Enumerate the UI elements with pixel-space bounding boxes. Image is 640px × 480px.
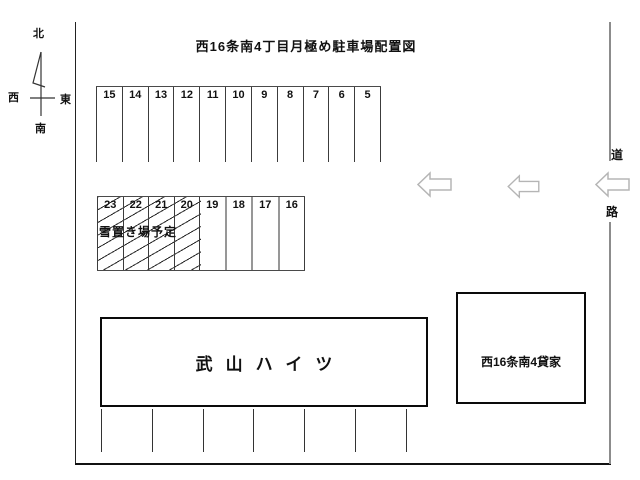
snow-storage-label: 雪置き場予定	[99, 223, 177, 240]
parking-stall-20: 20	[174, 197, 200, 270]
parking-stall-10: 10	[225, 87, 251, 162]
boundary-bottom-line	[75, 463, 611, 465]
diagram-title: 西16条南4丁目月極め駐車場配置図	[86, 36, 526, 55]
parking-stall-14: 14	[122, 87, 148, 162]
parking-row-middle: 雪置き場予定 23 22 21 20 19 18 17 16	[97, 196, 305, 271]
road-label-top: 道	[611, 146, 623, 163]
compass-south-label: 南	[35, 120, 46, 136]
parking-stall-unnumbered	[355, 409, 407, 452]
boundary-left-line	[75, 22, 76, 465]
building-rental-house: 西16条南4貸家	[456, 292, 586, 404]
compass-needle-icon	[25, 45, 60, 120]
parking-stall-8: 8	[277, 87, 303, 162]
left-arrow-icon	[507, 174, 540, 199]
parking-stall-unnumbered	[101, 409, 152, 452]
parking-stall-9: 9	[251, 87, 277, 162]
parking-stall-13: 13	[148, 87, 174, 162]
parking-stall-7: 7	[303, 87, 329, 162]
left-arrow-icon	[417, 171, 452, 198]
parking-stall-unnumbered	[203, 409, 254, 452]
parking-stall-11: 11	[199, 87, 225, 162]
parking-stall-18: 18	[225, 197, 252, 270]
parking-stall-19: 19	[199, 197, 225, 270]
parking-stall-6: 6	[328, 87, 354, 162]
compass-east-label: 東	[60, 91, 71, 107]
road-label-bottom: 路	[606, 203, 618, 220]
parking-stall-15: 15	[96, 87, 122, 162]
parking-stall-5: 5	[354, 87, 381, 162]
parking-stall-17: 17	[251, 197, 278, 270]
compass-west-label: 西	[8, 89, 19, 105]
road-boundary-line-upper	[609, 22, 611, 161]
parking-stall-16: 16	[278, 197, 306, 270]
parking-stall-unnumbered	[152, 409, 203, 452]
parking-row-top: 15 14 13 12 11 10 9 8 7 6 5	[96, 86, 381, 162]
parking-stall-unnumbered	[304, 409, 355, 452]
road-boundary-line-lower	[609, 222, 611, 464]
building-takeyama-heights: 武山ハイツ	[100, 317, 428, 407]
parking-lot-diagram: 西16条南4丁目月極め駐車場配置図 北 西 東 南 15 14 13 12 11…	[0, 0, 640, 480]
compass-north-label: 北	[33, 25, 44, 41]
parking-stall-12: 12	[173, 87, 199, 162]
parking-row-bottom	[101, 409, 407, 452]
building-takeyama-heights-label: 武山ハイツ	[183, 350, 346, 375]
left-arrow-icon	[595, 171, 630, 198]
parking-stall-unnumbered	[253, 409, 304, 452]
building-rental-house-label: 西16条南4貸家	[481, 353, 561, 370]
